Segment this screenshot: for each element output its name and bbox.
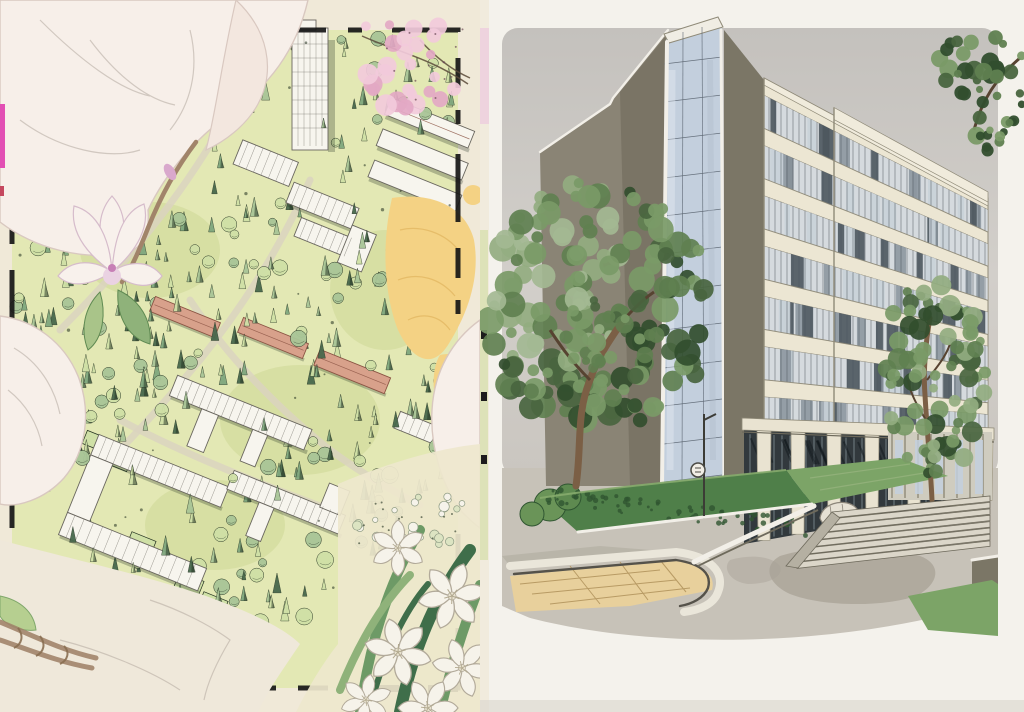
round-sign (691, 463, 705, 477)
gutter-bleed (480, 0, 502, 712)
building-rendering (480, 0, 1024, 712)
architectural-drawings-collage (0, 0, 1024, 712)
photo-edge-shadow (480, 700, 1024, 712)
site-plan-illustration (0, 0, 480, 712)
